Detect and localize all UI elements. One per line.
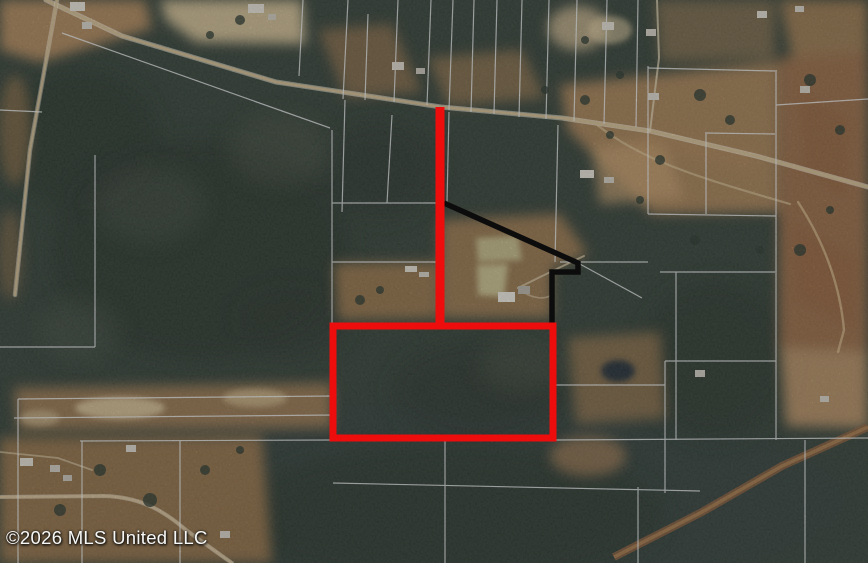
copyright-watermark: ©2026 MLS United LLC <box>6 527 208 549</box>
aerial-map-canvas <box>0 0 868 563</box>
grain-texture-light <box>0 0 868 563</box>
map-viewport[interactable]: ©2026 MLS United LLC <box>0 0 868 563</box>
